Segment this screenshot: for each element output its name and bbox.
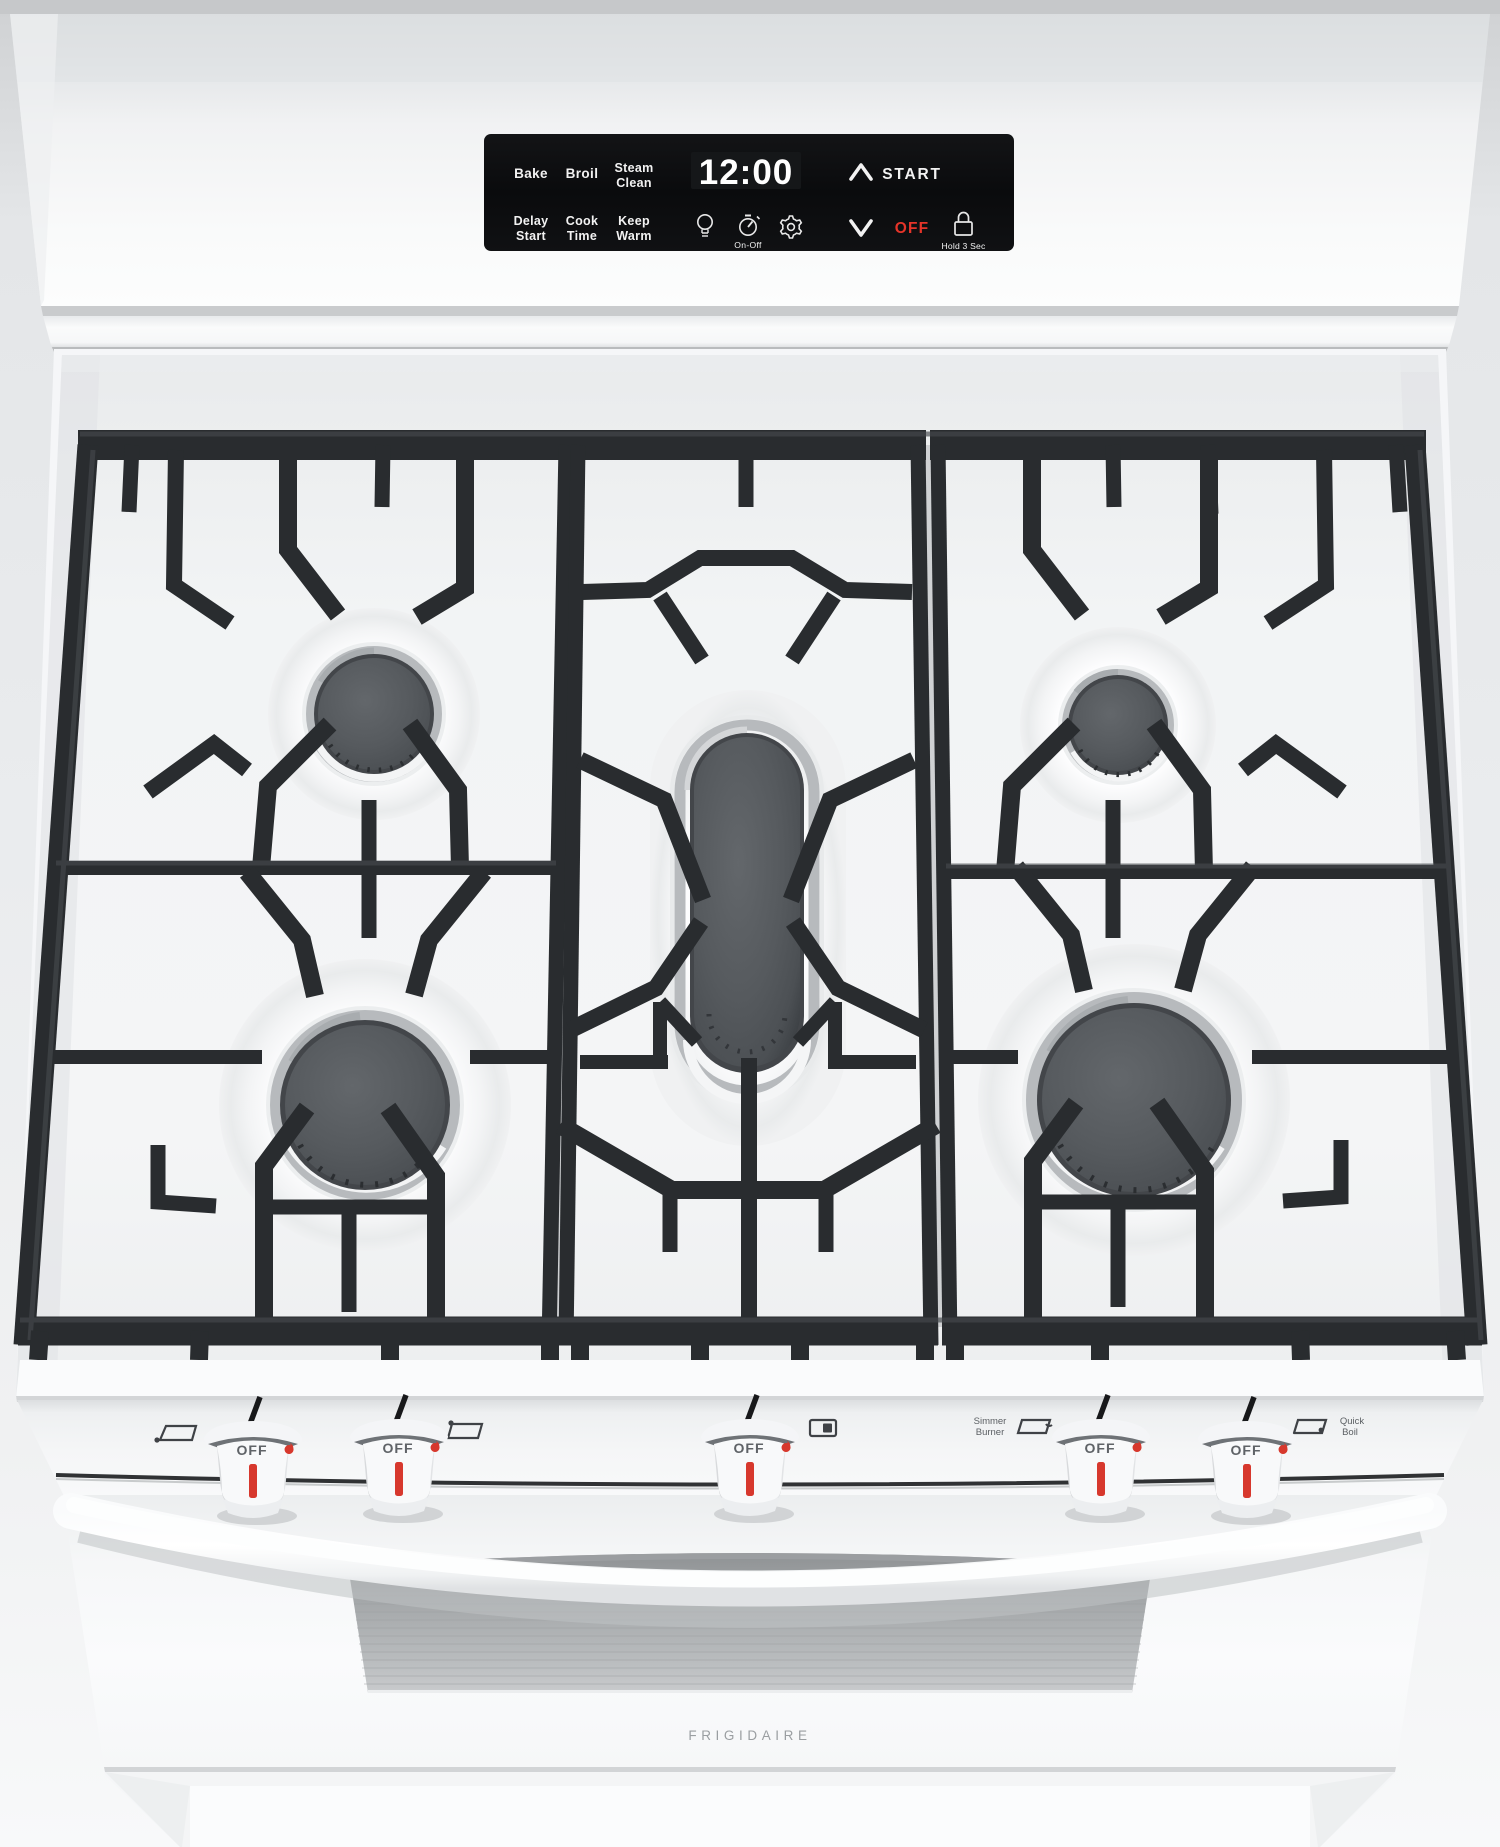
svg-text:Steam: Steam bbox=[614, 161, 653, 175]
svg-text:OFF: OFF bbox=[895, 220, 930, 237]
svg-text:On-Off: On-Off bbox=[734, 240, 762, 250]
svg-text:Delay: Delay bbox=[514, 214, 549, 228]
svg-text:Hold 3 Sec: Hold 3 Sec bbox=[941, 241, 986, 251]
svg-text:Broil: Broil bbox=[566, 166, 599, 181]
svg-text:Start: Start bbox=[516, 229, 547, 243]
svg-text:Clean: Clean bbox=[616, 176, 652, 190]
svg-text:Simmer: Simmer bbox=[974, 1416, 1007, 1427]
svg-text:Keep: Keep bbox=[618, 214, 650, 228]
svg-text:Bake: Bake bbox=[514, 166, 548, 181]
svg-text:Quick: Quick bbox=[1340, 1416, 1365, 1427]
svg-text:Warm: Warm bbox=[616, 229, 651, 243]
svg-text:Cook: Cook bbox=[566, 214, 598, 228]
svg-text:FRIGIDAIRE: FRIGIDAIRE bbox=[688, 1728, 811, 1743]
svg-text:Burner: Burner bbox=[976, 1427, 1005, 1438]
svg-text:START: START bbox=[882, 166, 942, 183]
svg-text:Time: Time bbox=[567, 229, 597, 243]
svg-text:Boil: Boil bbox=[1342, 1427, 1358, 1438]
svg-text:12:00: 12:00 bbox=[699, 153, 794, 192]
